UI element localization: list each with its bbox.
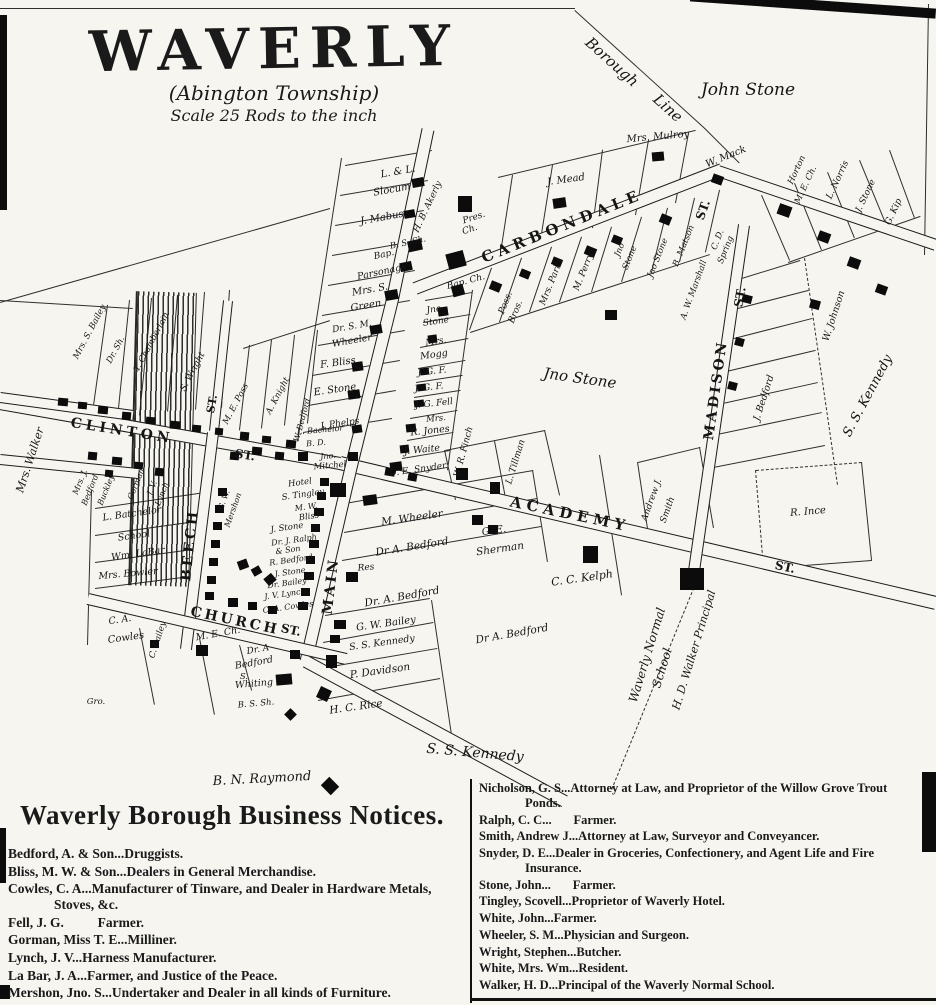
notice-item: Bliss, M. W. & Son...Dealers in General … [8,864,460,880]
property-label: Gro. [87,697,106,707]
street-label: ST. [234,447,256,464]
notice-item: Walker, H. D...Principal of the Waverly … [479,978,903,993]
property-label: J. Mead [546,172,585,188]
property-label: Wheeler [331,332,373,350]
building [228,598,238,607]
property-label: Jno Stone [646,237,671,279]
notice-item: Snyder, D. E...Dealer in Groceries, Conf… [479,846,903,876]
property-label: Slocum [373,181,412,198]
boundary-line [0,300,133,309]
boundary-line [804,258,838,485]
scanned-map-page: WAVERLY (Abington Township) Scale 25 Rod… [0,0,936,1005]
map-title: WAVERLY [64,16,485,82]
property-label: W. Mack [704,144,748,170]
business-notices-right-column: Nicholson, G. S...Attorney at Law, and P… [479,781,903,995]
notice-item: Bedford, A. & Son...Druggists. [8,846,460,862]
property-label: R. Ince [790,505,827,519]
area-label: S. S. Kennedy [840,352,896,439]
boundary-line [431,600,452,735]
property-label: J. G. F. [417,366,447,379]
building [472,515,483,525]
building [237,559,249,571]
property-label: C. A. Cowles [262,599,314,615]
bottom-rule-line [470,998,936,1001]
map-title-block: WAVERLY (Abington Township) Scale 25 Rod… [64,20,484,125]
boundary-line [544,430,560,495]
property-label: L. Norris [825,159,851,200]
building [240,432,250,441]
building [680,568,704,590]
building [276,673,293,685]
property-label: L. Tillman [504,439,527,486]
property-label: Mogg [420,348,449,363]
building [298,452,308,461]
area-label: John Stone [701,80,795,100]
building [727,381,738,391]
building [290,650,300,659]
notice-item: Smith, Andrew J...Attorney at Law, Surve… [479,829,903,844]
property-label: P. Davidson [349,661,411,681]
building [875,283,888,295]
building [262,436,272,444]
building [605,310,617,320]
property-label: Mrs. Mulroy [626,129,690,145]
property-label: Bedford [234,654,274,672]
property-label: Whiting [235,677,274,691]
building [248,602,257,610]
boundary-line [722,350,815,373]
street-label: MADISON [701,339,731,441]
property-label: Dr. A. Bedford [364,585,441,610]
area-label: Jno Stone [542,364,617,392]
building [583,546,598,563]
property-label: S. Tingley [281,487,325,503]
building [690,0,936,19]
building [321,777,339,795]
building [490,482,500,494]
property-label: Stone [422,315,449,329]
boundary-line [87,490,92,645]
building [146,417,156,425]
building [98,406,109,415]
property-label: A. W. Marshall [679,259,710,321]
boundary-line [0,208,330,303]
notice-item: Wheeler, S. M...Physician and Surgeon. [479,928,903,943]
building [458,196,472,212]
building [275,452,285,461]
building [489,280,503,292]
property-label: C. C. Kelph [550,567,613,589]
property-label: Jno [426,304,442,316]
property-label: Res [357,562,375,573]
property-label: Bap. [373,248,395,262]
building [192,425,202,433]
property-label: J. Bedford [751,374,776,423]
property-label: J. Mabus [359,209,404,227]
boundary-line [924,4,929,255]
property-label: M. Wheeler [380,508,443,529]
building [330,483,346,497]
building [284,708,297,721]
notice-item: Mershon, Jno. S...Undertaker and Dealer … [8,985,460,1001]
property-label: W. Johnson [821,289,848,342]
building [346,572,358,582]
building [0,828,6,883]
building [847,256,862,270]
property-label: G. E. [481,524,507,538]
area-label: B. N. Raymond [212,769,311,789]
notice-item: Gorman, Miss T. E...Milliner. [8,932,460,948]
boundary-line [712,412,822,436]
building [0,15,7,210]
building [155,468,165,477]
property-label: Smith [659,496,678,525]
property-label: W. R. Finch [452,426,475,478]
building [211,540,220,548]
property-label: H. C. Rice [329,697,384,716]
building [196,645,208,656]
building [348,452,358,461]
building [205,592,214,600]
property-label: Sherman [475,540,524,559]
building [320,478,329,486]
building [552,197,566,209]
boundary-line [117,300,130,418]
map-scale-note: Scale 25 Rods to the inch [64,106,484,125]
building [170,421,181,430]
building [112,457,123,466]
building [330,635,340,643]
property-label: Mrs. Parks [538,257,566,306]
boundary-line [735,260,800,281]
street-label: ST. [280,621,303,639]
notice-item: La Bar, J. A...Farmer, and Justice of th… [8,968,460,984]
notice-item: White, Mrs. Wm...Resident. [479,961,903,976]
building [311,524,320,532]
property-label: C. A. [108,613,132,627]
notice-item: Tingley, Scovell...Proprietor of Waverly… [479,894,903,909]
property-label: J. Stone [270,521,304,535]
property-label: Dr A. Bedford [475,622,550,647]
notice-item: Lynch, J. V...Harness Manufacturer. [8,950,460,966]
building [777,203,793,218]
area-label: S. S. Kennedy [426,741,525,765]
notice-item: White, John...Farmer. [479,911,903,926]
property-label: B. D. [306,438,326,449]
property-label: Mrs. S. [351,281,389,298]
building [652,151,665,161]
column-divider-line [470,779,472,1003]
property-label: J. Waite [403,443,440,458]
property-label: Cowles [107,630,145,646]
building [659,213,673,225]
area-label: Line [650,90,687,126]
business-notices-left-column: Bedford, A. & Son...Druggists.Bliss, M. … [8,846,460,1003]
notice-item: Nicholson, G. S...Attorney at Law, and P… [479,781,903,811]
building [519,268,531,279]
property-label: Mrs. [425,336,447,349]
property-label: B. S. Sh. [237,697,274,710]
property-label: M. E. Poss [221,382,251,426]
notice-item: Cowles, C. A...Manufacturer of Tinware, … [8,881,460,912]
building [922,772,936,852]
street-label: ST. [693,198,713,222]
building [207,576,216,584]
property-label: Dr A. Bedford [375,535,450,558]
notice-item: Stone, John... Farmer. [479,878,903,893]
boundary-line [756,462,862,471]
building [213,522,222,530]
boundary-line [861,462,872,560]
boundary-line [0,8,575,9]
boundary-line [638,447,700,463]
building [251,565,263,576]
building [88,452,98,461]
notice-item: Wright, Stephen...Butcher. [479,945,903,960]
building [215,428,224,436]
building [734,337,745,347]
building [334,620,346,629]
building [362,494,377,506]
property-label: Hotel [288,476,313,489]
building [122,412,132,421]
building [326,655,337,668]
notice-item: Fell, J. G. Farmer. [8,915,460,931]
building [209,558,218,566]
building [58,398,69,407]
area-label: H. D. Walker Principal [670,589,719,712]
street-label: ST. [774,558,797,576]
property-label: Green [350,298,382,314]
business-notices-heading: Waverly Borough Business Notices. [20,800,444,831]
building [78,402,88,410]
notice-item: Ralph, C. C... Farmer. [479,813,903,828]
